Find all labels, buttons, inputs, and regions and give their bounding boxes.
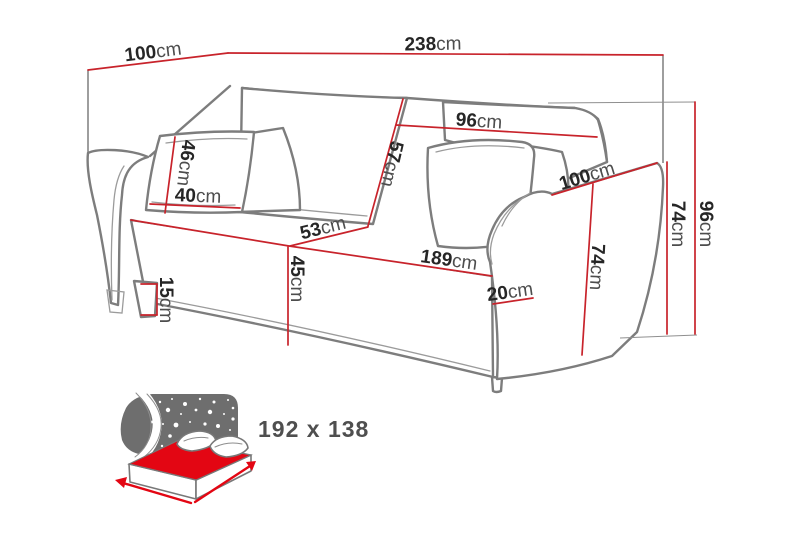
width-arrowhead [115, 477, 127, 488]
dimension-armrest-height-outer: 74cm [667, 162, 689, 334]
dimension-label: 238cm [404, 33, 461, 55]
sofa-bed-icon: 192 x 138 [115, 391, 369, 503]
dimension-top-depth: 100cm [88, 38, 228, 70]
dimension-label: 74cm [585, 243, 608, 291]
bed-size-label: 192 x 138 [258, 416, 369, 442]
dimension-total-height: 96cm [695, 102, 717, 334]
left-front-leg [134, 281, 157, 317]
extension-top-right [548, 102, 695, 103]
sofa-dimension-diagram-page: 100cm 238cm 96cm 57cm 46cm 40cm 53cm 45c… [0, 0, 800, 533]
dimension-label: 96cm [696, 201, 717, 247]
dimension-label: 40cm [174, 185, 221, 208]
dimension-label: 15cm [156, 277, 177, 323]
sofa-dimension-diagram: 100cm 238cm 96cm 57cm 46cm 40cm 53cm 45c… [0, 0, 800, 533]
dimension-label: 100cm [123, 38, 182, 66]
dimension-label: 45cm [287, 256, 308, 302]
dimension-label: 96cm [455, 109, 503, 133]
dimension-label: 74cm [668, 201, 689, 247]
dimension-total-width: 238cm [228, 33, 663, 55]
sofa-drawing [88, 55, 664, 392]
